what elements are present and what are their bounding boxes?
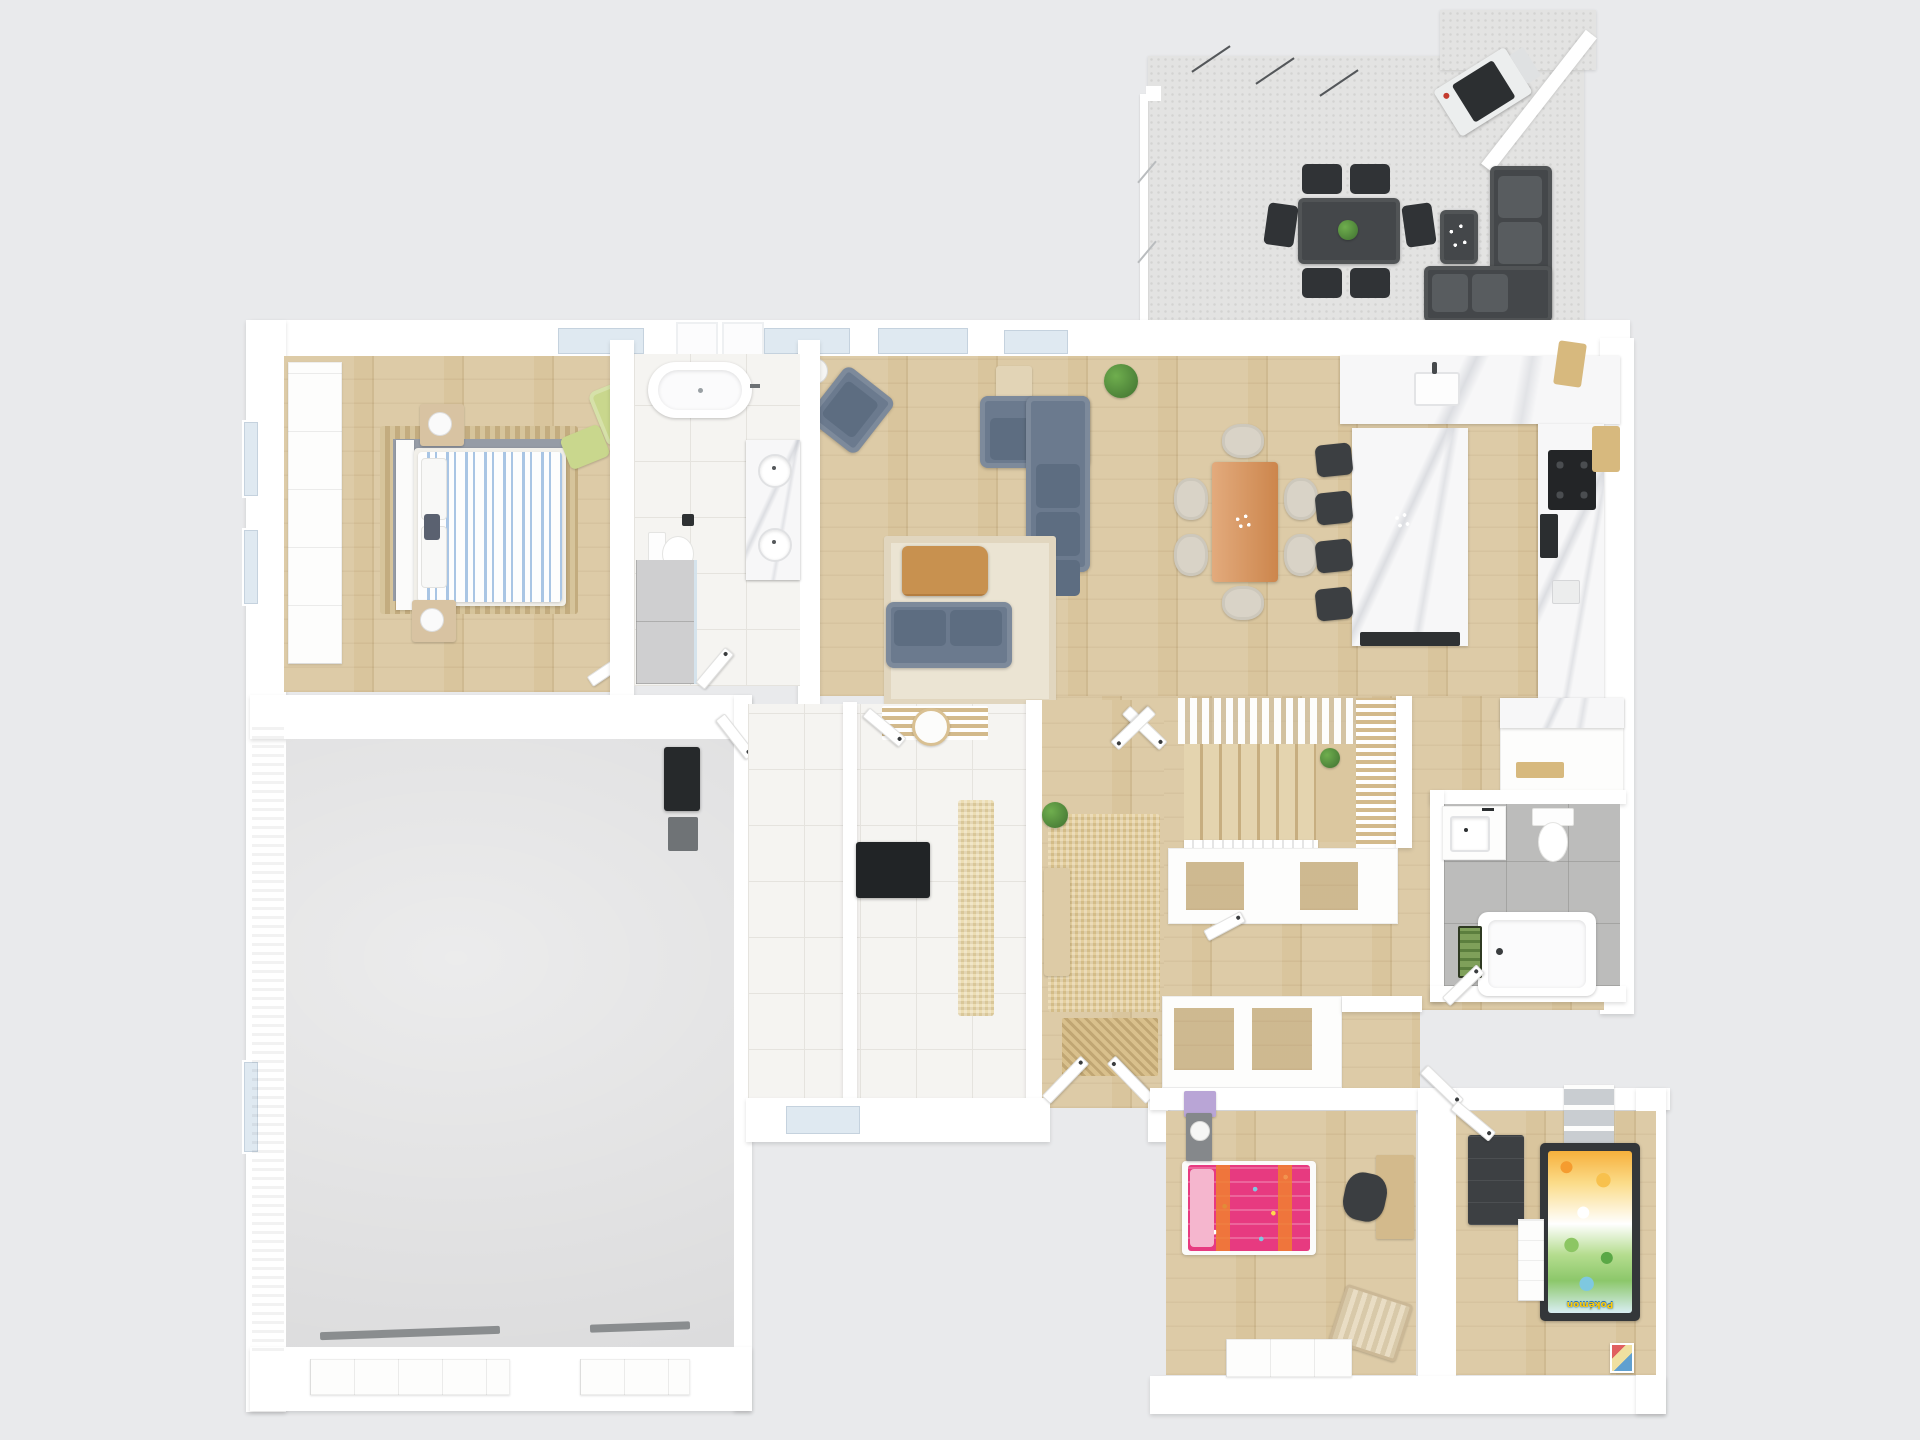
kids1-closet xyxy=(1226,1339,1352,1377)
kids1-duvet-orange-stripe xyxy=(1278,1165,1292,1251)
pantry-cabinets xyxy=(1500,698,1624,798)
pokemon-logo-text: Pokémon xyxy=(1548,1299,1632,1309)
table-lamp xyxy=(428,412,452,436)
toilet-paper-holder xyxy=(682,514,694,526)
room-entry-hall xyxy=(1042,700,1164,1115)
island-flowers xyxy=(1388,506,1418,536)
hallway-floor-patch xyxy=(1342,1008,1420,1092)
cutting-board xyxy=(1592,426,1620,472)
kids1-lamp xyxy=(1190,1121,1210,1141)
room-kids-bedroom-2: Pokémon xyxy=(1452,1095,1662,1387)
outdoor-chair xyxy=(1263,202,1299,248)
kids1-duvet-orange-stripe xyxy=(1216,1165,1230,1251)
storage-divider-wall xyxy=(843,702,857,1106)
bar-stool xyxy=(1314,538,1353,574)
floor-plan: Pokémon xyxy=(0,0,1920,1440)
bath2-tub xyxy=(1478,912,1596,996)
cube-shelf xyxy=(1564,1085,1614,1147)
runner-rug xyxy=(958,800,994,1016)
mudroom-south-door xyxy=(784,1104,862,1136)
garage-wall-top xyxy=(250,695,752,739)
room-family-bathroom xyxy=(1430,790,1630,1012)
dark-wardrobe xyxy=(1468,1135,1524,1225)
kids1-pillow xyxy=(1190,1169,1214,1247)
kitchen-sink xyxy=(1414,372,1460,406)
balustrade-post xyxy=(1146,86,1161,101)
hall-closet-row xyxy=(1162,996,1342,1088)
garage-door xyxy=(310,1359,510,1395)
cutting-board xyxy=(1516,762,1564,778)
bar-stool xyxy=(1314,490,1353,526)
garage-wall-texture xyxy=(252,721,284,1351)
potted-plant xyxy=(1104,364,1138,398)
bath2-toilet xyxy=(1530,808,1574,864)
wall-picture xyxy=(1610,1343,1634,1373)
room-ensuite-bathroom xyxy=(634,354,800,694)
dining-chair xyxy=(1284,534,1318,576)
bed-accent-cushion xyxy=(424,514,440,540)
cooktop xyxy=(1548,450,1596,510)
wardrobe-row xyxy=(288,362,342,664)
counter-appliance xyxy=(1552,580,1580,604)
island-base xyxy=(1360,632,1460,646)
outdoor-chair xyxy=(1350,164,1390,194)
window xyxy=(1002,328,1070,356)
room-mudroom xyxy=(748,704,1030,1106)
live-edge-coffee-table xyxy=(902,546,988,596)
wall-hall-east xyxy=(1342,996,1422,1012)
bath2-wall-top xyxy=(1430,790,1626,804)
double-vanity xyxy=(746,440,800,580)
pellet-stove xyxy=(664,747,700,811)
bed-pillow xyxy=(421,458,447,520)
utility-box xyxy=(668,817,698,851)
outdoor-chair xyxy=(1302,164,1342,194)
outdoor-sofa-bottom xyxy=(1424,266,1552,322)
window-left-wall xyxy=(242,528,260,606)
white-dresser xyxy=(1518,1219,1544,1301)
dining-chair xyxy=(1222,424,1264,458)
outdoor-coffee-table xyxy=(1440,210,1478,264)
dining-chair xyxy=(1284,478,1318,520)
glass-balustrade xyxy=(1140,94,1148,340)
kitchen-island xyxy=(1352,428,1468,646)
bath2-vanity xyxy=(1442,806,1506,860)
skylight xyxy=(676,322,718,356)
freestanding-bathtub xyxy=(648,362,752,418)
dining-chair xyxy=(1222,586,1264,620)
round-side-table xyxy=(912,708,950,746)
kids1-bed xyxy=(1182,1161,1316,1255)
loveseat xyxy=(886,602,1012,668)
black-cabinet xyxy=(856,842,930,898)
garage-floor xyxy=(286,739,734,1347)
table-centerpiece-plant xyxy=(1338,220,1358,240)
bar-stool xyxy=(1314,586,1353,622)
under-stair-closets xyxy=(1168,848,1398,924)
dining-chair xyxy=(1174,534,1208,576)
bed-headboard xyxy=(396,440,414,610)
skylight xyxy=(722,322,764,356)
kids2-bed: Pokémon xyxy=(1540,1143,1640,1321)
bath2-faucet xyxy=(1482,808,1494,811)
outdoor-chair xyxy=(1401,202,1437,248)
outdoor-chair xyxy=(1302,268,1342,298)
kids2-duvet-pokemon: Pokémon xyxy=(1548,1151,1632,1313)
dining-chair xyxy=(1174,478,1208,520)
round-sink xyxy=(758,454,792,488)
built-in-oven xyxy=(1540,514,1558,558)
bar-stool xyxy=(1314,442,1353,478)
entry-bench xyxy=(1044,868,1070,976)
bath2-sink xyxy=(1450,816,1490,852)
wall-kids-divider xyxy=(1418,1088,1456,1382)
stair-steps xyxy=(1184,744,1316,842)
room-living-kitchen xyxy=(818,356,1604,696)
dining-centerpiece xyxy=(1228,508,1260,536)
window xyxy=(876,326,970,356)
kitchen-faucet xyxy=(1432,362,1437,374)
wall-bedroom-bath xyxy=(610,340,634,712)
room-master-bedroom xyxy=(284,356,644,696)
wall-bath-living xyxy=(798,340,820,712)
room-kids-bedroom-1 xyxy=(1160,1095,1420,1387)
stair-plant xyxy=(1320,748,1340,768)
table-lamp xyxy=(420,608,444,632)
walk-in-shower xyxy=(636,560,694,684)
outdoor-chair xyxy=(1350,268,1390,298)
tub-faucet xyxy=(750,384,760,388)
window-left-wall xyxy=(242,420,260,498)
shower-glass xyxy=(694,560,697,684)
entry-plant xyxy=(1042,802,1068,828)
wall-mudroom-entry xyxy=(1026,700,1042,1112)
round-sink xyxy=(758,528,792,562)
wall-stair-east xyxy=(1396,696,1412,848)
garage-door xyxy=(580,1359,690,1395)
